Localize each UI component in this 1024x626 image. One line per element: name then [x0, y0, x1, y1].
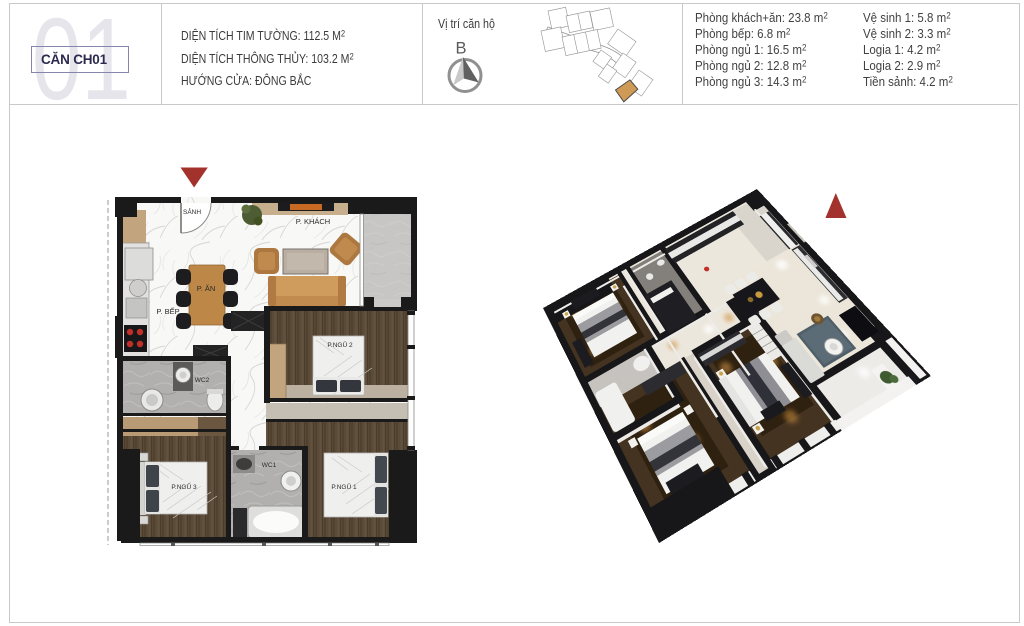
svg-text:P.NGỦ 1: P.NGỦ 1 — [331, 482, 357, 491]
svg-text:WC1: WC1 — [262, 462, 277, 469]
svg-text:P. BẾP: P. BẾP — [156, 306, 179, 316]
svg-text:P.NGỦ 3: P.NGỦ 3 — [171, 482, 197, 491]
svg-text:B: B — [455, 40, 466, 58]
svg-text:P. KHÁCH: P. KHÁCH — [296, 217, 330, 226]
svg-text:P. ĂN: P. ĂN — [197, 284, 216, 293]
svg-text:SẢNH: SẢNH — [183, 207, 201, 216]
svg-text:WC2: WC2 — [195, 377, 210, 384]
svg-text:P.NGỦ 2: P.NGỦ 2 — [327, 340, 353, 349]
